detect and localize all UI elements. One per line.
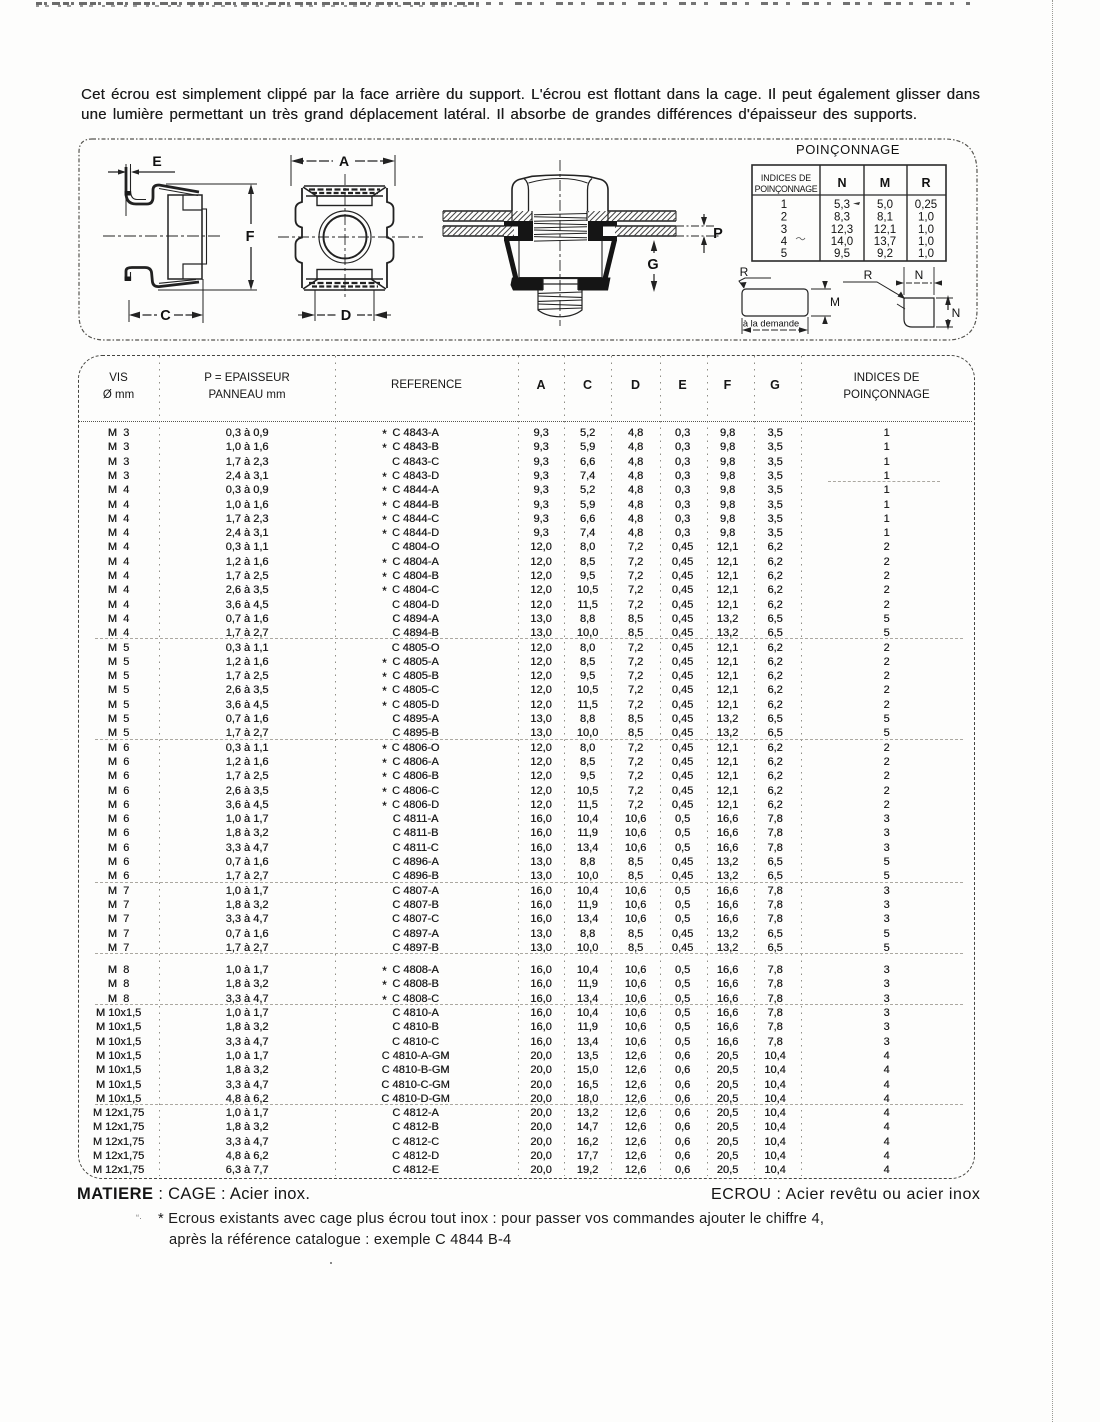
svg-text:N: N <box>837 176 846 190</box>
svg-text:1,0: 1,0 <box>918 248 934 260</box>
svg-text:13,7: 13,7 <box>874 236 896 248</box>
svg-text:à la demande: à la demande <box>743 319 799 329</box>
svg-text:INDICES DE: INDICES DE <box>761 173 811 183</box>
svg-text:M: M <box>830 295 840 309</box>
svg-text:D: D <box>341 308 351 324</box>
svg-text:M: M <box>880 176 890 190</box>
svg-text:8,1: 8,1 <box>877 212 893 224</box>
svg-text:C: C <box>160 308 171 324</box>
svg-text:12,1: 12,1 <box>874 224 896 236</box>
svg-text:9,2: 9,2 <box>877 248 893 260</box>
svg-text:5,0: 5,0 <box>877 199 893 211</box>
svg-text:P: P <box>713 226 723 242</box>
svg-text:A: A <box>339 153 349 169</box>
svg-text:N: N <box>952 306 961 320</box>
svg-text:5,3: 5,3 <box>834 199 850 211</box>
svg-text:R: R <box>864 268 873 282</box>
svg-text:0,25: 0,25 <box>915 199 937 211</box>
svg-text:3: 3 <box>781 224 787 236</box>
svg-text:R: R <box>740 265 749 279</box>
svg-text:F: F <box>246 229 255 245</box>
svg-text:E: E <box>152 153 161 169</box>
svg-text:R: R <box>921 176 930 190</box>
svg-text:14,0: 14,0 <box>831 236 853 248</box>
svg-text:4: 4 <box>781 236 788 248</box>
svg-text:1,0: 1,0 <box>918 212 934 224</box>
svg-text:POINÇONNAGE: POINÇONNAGE <box>796 142 900 157</box>
svg-text:12,3: 12,3 <box>831 224 853 236</box>
svg-text:1,0: 1,0 <box>918 236 934 248</box>
svg-text:1: 1 <box>781 199 787 211</box>
svg-text:9,5: 9,5 <box>834 248 850 260</box>
svg-text:G: G <box>647 257 658 273</box>
svg-text:1,0: 1,0 <box>918 224 934 236</box>
svg-text:POINÇONNAGE: POINÇONNAGE <box>755 184 818 194</box>
svg-text:2: 2 <box>781 212 787 224</box>
svg-text:5: 5 <box>781 248 787 260</box>
svg-text:8,3: 8,3 <box>834 212 850 224</box>
svg-text:N: N <box>915 268 924 282</box>
